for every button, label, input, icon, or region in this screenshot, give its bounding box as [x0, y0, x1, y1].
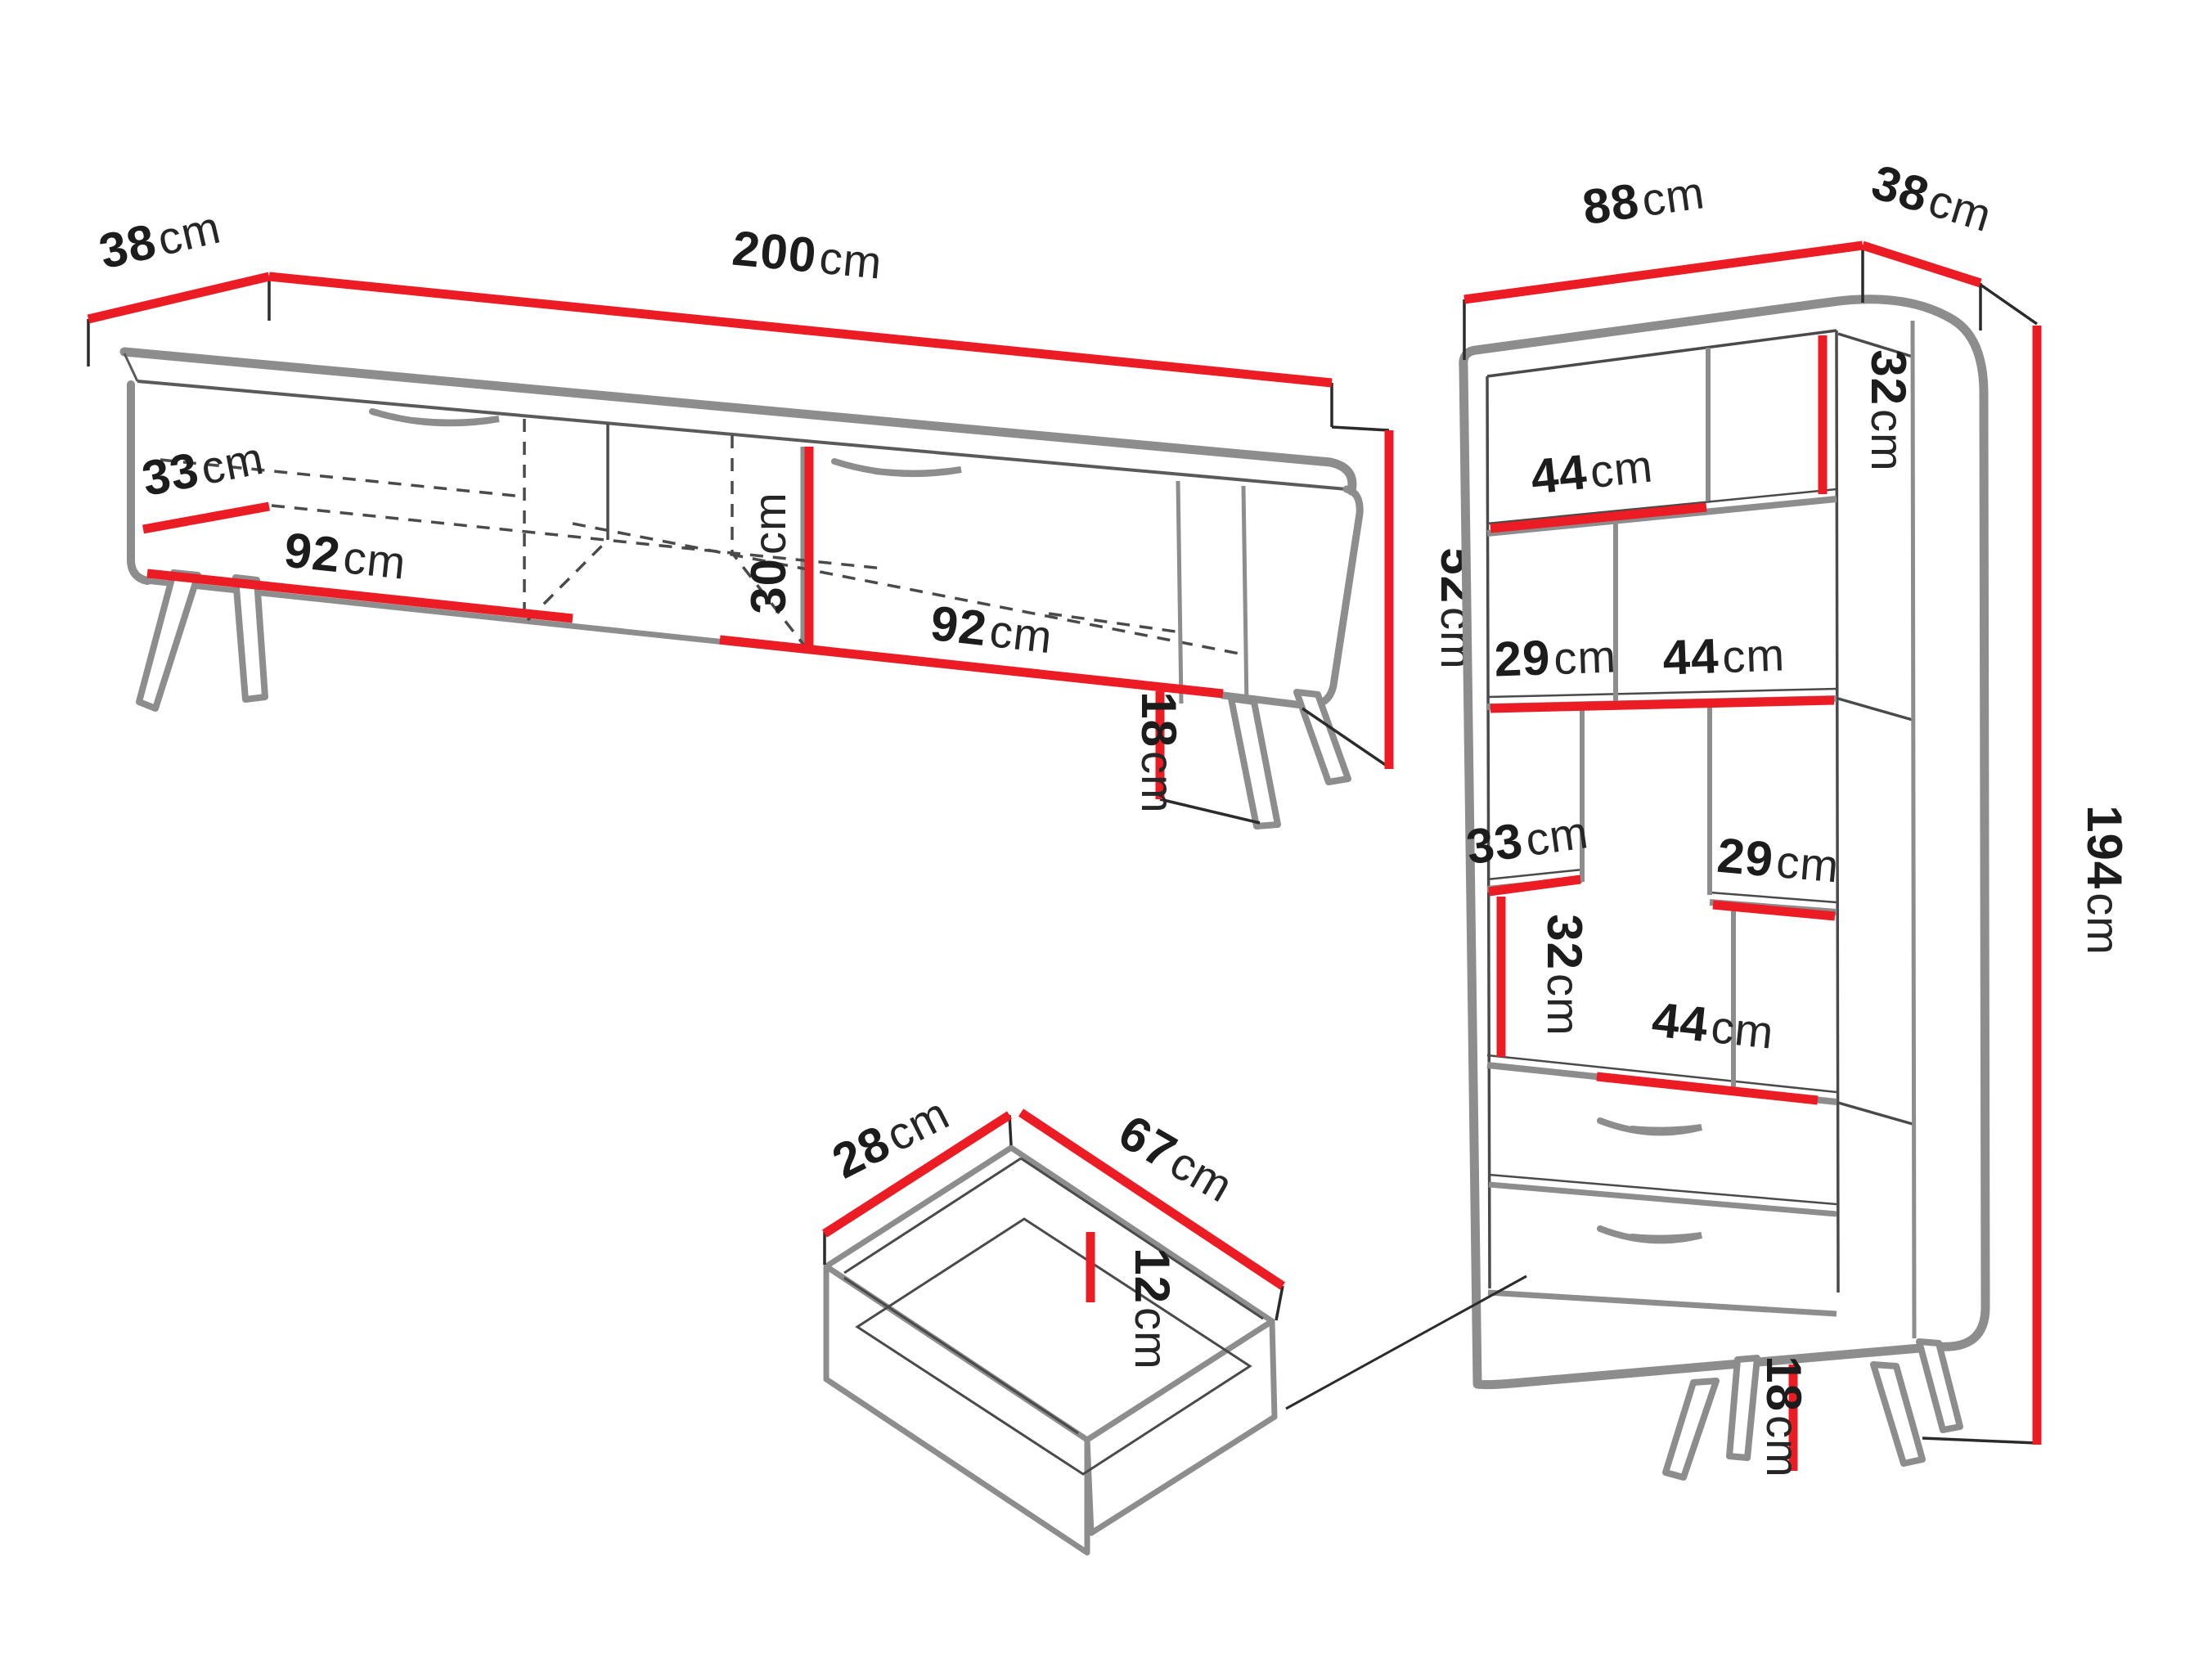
dim-label-bk-total-height: 194cm: [2077, 805, 2132, 955]
tv-leg-front-right: [1231, 699, 1278, 826]
dim-line-bk-top-depth: [1863, 245, 1980, 283]
bookcase-leg-back-right: [1919, 1342, 1960, 1430]
dim-label-tv-top-depth: 38cm: [94, 199, 226, 280]
tv-leg-front-left: [139, 573, 198, 708]
dim-label-bk-width: 88cm: [1580, 164, 1708, 235]
bookcase-leg-front-left: [1666, 1381, 1716, 1477]
dim-label-bk-top-depth: 38cm: [1866, 155, 1998, 243]
dim-label-bk-top-cell-height: 32cm: [1861, 349, 1916, 471]
drawer-detail-drawing: 28cm 67cm 12cm: [824, 1085, 1283, 1553]
dim-label-tv-width: 200cm: [730, 220, 884, 289]
dim-label-dr-inner-height: 12cm: [1125, 1248, 1180, 1369]
dim-label-dr-depth: 28cm: [824, 1085, 958, 1189]
bookcase-leg-back-left: [1729, 1358, 1757, 1458]
bookcase-leg-front-right: [1873, 1365, 1922, 1463]
tv-leg-back-right: [1297, 692, 1348, 782]
dim-label-bk-leg-height: 18cm: [1756, 1356, 1811, 1477]
dim-line-tv-width: [269, 276, 1332, 383]
dim-label-bk-row2-right: 44cm: [1661, 626, 1786, 685]
dim-label-dr-width: 67cm: [1110, 1104, 1243, 1213]
bookcase-right-inner-vertical: [1913, 321, 1914, 1338]
dim-line-bk-width: [1464, 245, 1863, 299]
dim-label-tv-leg-height: 18cm: [1131, 691, 1186, 813]
furniture-dimension-diagram-page: 38cm 200cm 33cm 92cm 30cm 92cm 52cm 18cm: [0, 0, 2212, 1659]
dim-label-bk-row2-left: 29cm: [1493, 627, 1617, 686]
tv-leg-back-left: [236, 578, 265, 699]
bookcase-drawing: 88cm 38cm 32cm 44cm 29cm 44cm 33cm 29cm …: [1286, 155, 2132, 1478]
dim-label-tv-niche-height: 30cm: [741, 492, 796, 614]
dim-line-tv-top-depth: [88, 276, 269, 319]
tv-stand-drawing: 38cm 200cm 33cm 92cm 30cm 92cm 52cm 18cm: [88, 199, 1486, 826]
diagram-canvas: 38cm 200cm 33cm 92cm 30cm 92cm 52cm 18cm: [0, 0, 2212, 1659]
dim-label-bk-row4-height: 32cm: [1537, 914, 1592, 1036]
